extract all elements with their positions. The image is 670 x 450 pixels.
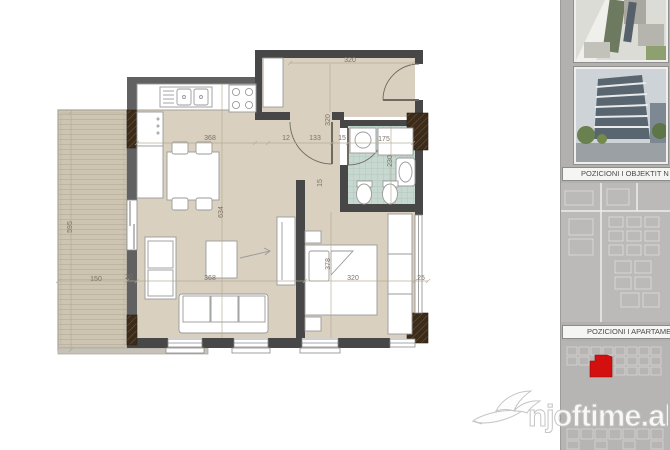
sofa bbox=[179, 294, 268, 333]
dimension-label: 368 bbox=[204, 135, 216, 142]
dimension-label: 20 bbox=[125, 274, 133, 281]
dimension-label: 378 bbox=[325, 258, 332, 270]
dimension-label: 150 bbox=[90, 276, 102, 283]
dimension-label: 15 bbox=[317, 179, 324, 187]
sliding-door bbox=[127, 200, 137, 250]
stove bbox=[229, 85, 256, 112]
dining-table bbox=[167, 142, 219, 210]
dimension-label: 320 bbox=[347, 275, 359, 282]
wardrobe bbox=[388, 214, 412, 334]
aerial-render bbox=[576, 0, 666, 60]
dimension-label: 320 bbox=[325, 114, 332, 126]
dimension-label: 320 bbox=[344, 57, 356, 64]
thumbnail-building-render bbox=[574, 67, 668, 164]
dimension-label: 25 bbox=[417, 275, 425, 282]
screenshot-root: 3203203681213315175230156345951502036837… bbox=[0, 0, 670, 450]
coffee-table bbox=[206, 241, 237, 278]
dimension-label: 133 bbox=[309, 135, 321, 142]
kitchen-cabinet bbox=[137, 112, 163, 198]
washing-machine bbox=[350, 128, 376, 153]
hall-closet bbox=[263, 58, 283, 107]
label-object-position: POZICIONI I OBJEKTIT N bbox=[562, 167, 670, 181]
building-render bbox=[576, 69, 666, 162]
bidet bbox=[383, 181, 399, 204]
armchair bbox=[145, 237, 176, 299]
bathroom-sink bbox=[396, 158, 415, 186]
dimension-label: 634 bbox=[218, 206, 225, 218]
city-map-drawing bbox=[561, 183, 670, 322]
label-apartment-position: POZICIONI I APARTAME bbox=[562, 325, 670, 339]
dimension-label: 595 bbox=[67, 221, 74, 233]
thumbnail-aerial-view bbox=[574, 0, 668, 62]
toilet bbox=[357, 181, 373, 204]
dimension-label: 175 bbox=[378, 136, 390, 143]
dimension-label: 15 bbox=[338, 135, 346, 142]
dimension-label: 12 bbox=[282, 135, 290, 142]
watermark-text: njoftime.al bbox=[528, 398, 668, 433]
city-map bbox=[561, 183, 670, 322]
dimension-label: 368 bbox=[204, 275, 216, 282]
watermark: njoftime.al bbox=[468, 380, 668, 442]
dimension-label: 230 bbox=[387, 155, 394, 167]
